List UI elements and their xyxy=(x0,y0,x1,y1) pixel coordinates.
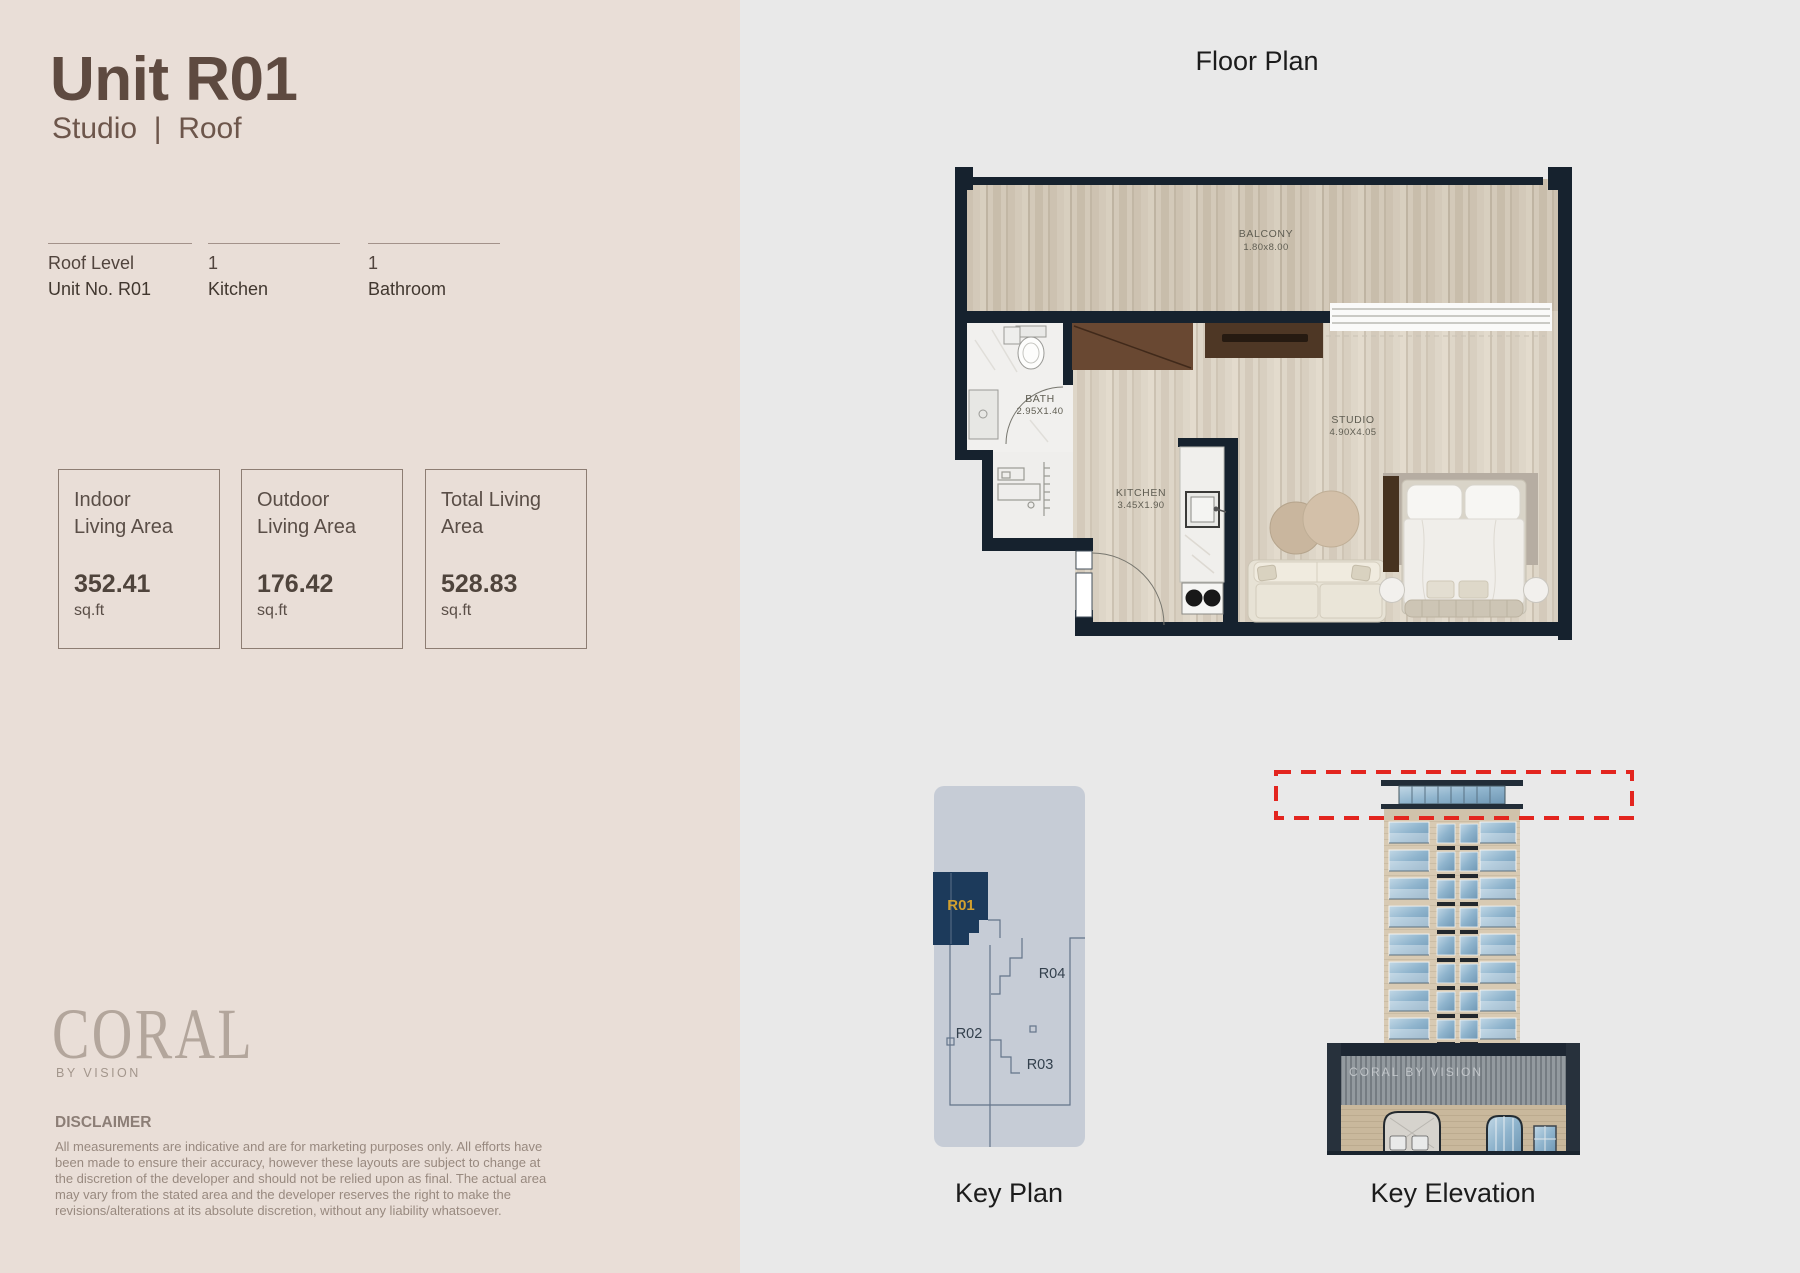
media-console xyxy=(1205,323,1323,358)
key-plan-unit-r03: R03 xyxy=(1027,1057,1054,1073)
sliding-door xyxy=(1330,303,1552,331)
key-plan-unit-r02: R02 xyxy=(956,1026,983,1042)
side-table xyxy=(1524,578,1549,603)
studio-label: STUDIO xyxy=(1331,414,1374,426)
bath-dims: 2.95X1.40 xyxy=(1017,406,1064,417)
podium-slats xyxy=(1340,1056,1567,1105)
rug xyxy=(1303,491,1359,547)
utility-floor xyxy=(993,452,1073,551)
bath-label: BATH xyxy=(1025,393,1055,405)
balcony-dims: 1.80x8.00 xyxy=(1243,242,1288,253)
podium-base xyxy=(1341,1105,1566,1153)
building-sign: CORAL BY VISION xyxy=(1349,1065,1483,1079)
key-plan-unit-r04: R04 xyxy=(1039,966,1066,982)
vanity xyxy=(969,390,998,439)
balcony-label: BALCONY xyxy=(1239,228,1293,240)
car-icon xyxy=(1390,1136,1406,1150)
kitchen-counter xyxy=(1180,447,1226,614)
car-icon xyxy=(1412,1136,1428,1150)
kitchen-cabinet xyxy=(1072,323,1193,370)
plans-canvas: BALCONY 1.80x8.00 BATH 2.95X1.40 KITCHEN… xyxy=(0,0,1800,1273)
key-plan-drawing: R01 R02 R04 R03 xyxy=(933,786,1085,1147)
sofa xyxy=(1248,560,1386,622)
kitchen-dims: 3.45X1.90 xyxy=(1118,500,1165,511)
key-elevation-drawing: CORAL BY VISION xyxy=(1276,772,1632,1155)
roof-glass-room xyxy=(1399,786,1505,804)
floor-plan-drawing: BALCONY 1.80x8.00 BATH 2.95X1.40 KITCHEN… xyxy=(948,167,1572,648)
side-table xyxy=(1380,578,1405,603)
key-plan-unit-r01: R01 xyxy=(947,897,975,914)
wardrobe xyxy=(1383,476,1399,572)
bed xyxy=(1402,480,1526,617)
studio-dims: 4.90X4.05 xyxy=(1330,427,1377,438)
kitchen-label: KITCHEN xyxy=(1116,487,1166,499)
page: Unit R01 Studio | Roof Roof Level Unit N… xyxy=(0,0,1800,1273)
